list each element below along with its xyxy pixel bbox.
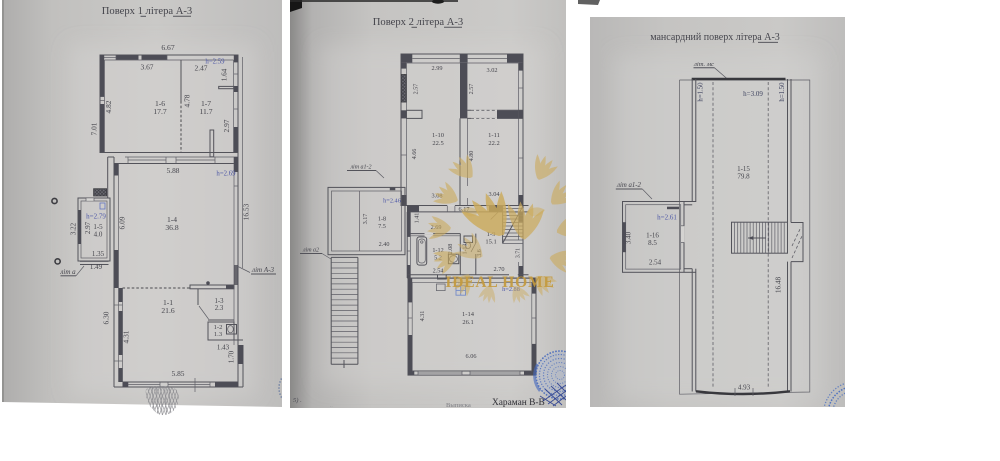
svg-text:2.54: 2.54: [649, 259, 662, 267]
svg-text:4.93: 4.93: [738, 384, 751, 392]
svg-text:16.53: 16.53: [242, 203, 251, 220]
svg-text:літ а2: літ а2: [302, 248, 319, 254]
svg-text:літ а: літ а: [59, 268, 76, 276]
svg-text:Выписка: Выписка: [446, 402, 471, 409]
svg-text:2.40: 2.40: [379, 241, 390, 248]
svg-text:6.09: 6.09: [118, 216, 127, 229]
svg-text:1.35: 1.35: [92, 250, 105, 258]
svg-text:2.99: 2.99: [431, 65, 442, 72]
svg-text:h=2.46: h=2.46: [383, 198, 401, 205]
svg-text:3.71: 3.71: [516, 248, 522, 258]
svg-text:2.3: 2.3: [215, 305, 224, 312]
svg-text:2.97: 2.97: [84, 221, 92, 234]
svg-text:Поверх 2 літера А-3: Поверх 2 літера А-3: [373, 17, 463, 28]
svg-text:4.78: 4.78: [183, 94, 192, 107]
svg-text:17.7: 17.7: [153, 107, 166, 116]
svg-text:15.1: 15.1: [485, 239, 496, 246]
svg-text:1.43: 1.43: [217, 344, 230, 352]
svg-text:4.31: 4.31: [419, 311, 426, 322]
svg-text:2.70: 2.70: [493, 266, 504, 273]
svg-text:4.31: 4.31: [122, 330, 131, 343]
svg-text:6.06: 6.06: [465, 353, 476, 360]
svg-text:літ а1-2: літ а1-2: [349, 165, 371, 171]
svg-text:8.5: 8.5: [648, 239, 657, 247]
svg-text:h=1.50: h=1.50: [779, 82, 786, 102]
svg-text:2.97: 2.97: [222, 119, 231, 132]
svg-text:літ А-3: літ А-3: [251, 266, 274, 274]
svg-text:22.5: 22.5: [432, 140, 443, 147]
svg-text:3.17: 3.17: [362, 214, 369, 225]
svg-text:Поверх 1 літера А-3: Поверх 1 літера А-3: [102, 6, 192, 17]
svg-text:3.22: 3.22: [70, 222, 78, 235]
svg-text:36.8: 36.8: [165, 223, 178, 232]
svg-text:h=2.59: h=2.59: [205, 59, 225, 66]
svg-text:4.0: 4.0: [94, 231, 103, 239]
svg-text:4.82: 4.82: [104, 100, 113, 113]
svg-text:1-8: 1-8: [378, 216, 386, 223]
svg-text:7.5: 7.5: [378, 223, 386, 230]
svg-text:1.49: 1.49: [90, 263, 103, 271]
svg-text:1.41: 1.41: [414, 213, 421, 224]
svg-text:21.6: 21.6: [161, 306, 174, 315]
svg-text:h=2.69: h=2.69: [216, 171, 236, 178]
svg-text:літ. мс: літ. мс: [693, 61, 714, 68]
svg-text:1-10: 1-10: [432, 132, 444, 139]
svg-text:2.57: 2.57: [468, 84, 475, 95]
svg-text:мансардний поверх літера А-3: мансардний поверх літера А-3: [650, 32, 780, 43]
svg-text:1.3: 1.3: [214, 331, 223, 338]
svg-text:6.30: 6.30: [102, 311, 111, 324]
svg-text:1-14: 1-14: [462, 311, 475, 318]
svg-text:2.57: 2.57: [413, 84, 420, 95]
svg-text:3.40: 3.40: [625, 231, 633, 244]
svg-text:3.67: 3.67: [141, 63, 154, 72]
svg-text:h=3.09: h=3.09: [743, 90, 763, 98]
svg-text:1.70: 1.70: [228, 350, 236, 363]
svg-text:79.8: 79.8: [737, 173, 750, 181]
svg-text:2.54: 2.54: [433, 268, 444, 275]
svg-text:3.02: 3.02: [486, 67, 497, 74]
svg-text:1-11: 1-11: [488, 132, 500, 139]
svg-text:1-2: 1-2: [214, 324, 223, 331]
svg-text:5.85: 5.85: [172, 369, 185, 378]
svg-text:5.88: 5.88: [167, 166, 180, 175]
svg-text:IDEAL HOME: IDEAL HOME: [445, 274, 554, 291]
svg-text:h=1.50: h=1.50: [698, 82, 705, 102]
svg-text:літ а1-2: літ а1-2: [616, 182, 642, 189]
svg-text:h=2.61: h=2.61: [657, 214, 677, 222]
svg-text:1.64: 1.64: [221, 68, 229, 81]
svg-text:11.7: 11.7: [199, 107, 212, 116]
svg-text:5) .: 5) .: [293, 397, 302, 404]
svg-text:7.01: 7.01: [90, 122, 99, 135]
svg-text:h=2.79: h=2.79: [86, 213, 106, 221]
svg-text:26.1: 26.1: [462, 319, 473, 326]
svg-text:4.66: 4.66: [411, 149, 418, 160]
svg-text:6.67: 6.67: [161, 43, 174, 52]
svg-text:22.2: 22.2: [488, 140, 499, 147]
svg-text:1-3: 1-3: [214, 298, 224, 305]
svg-text:Хараман В-В: Хараман В-В: [492, 398, 545, 408]
svg-text:3.04: 3.04: [488, 191, 500, 198]
svg-text:16.48: 16.48: [775, 277, 783, 294]
